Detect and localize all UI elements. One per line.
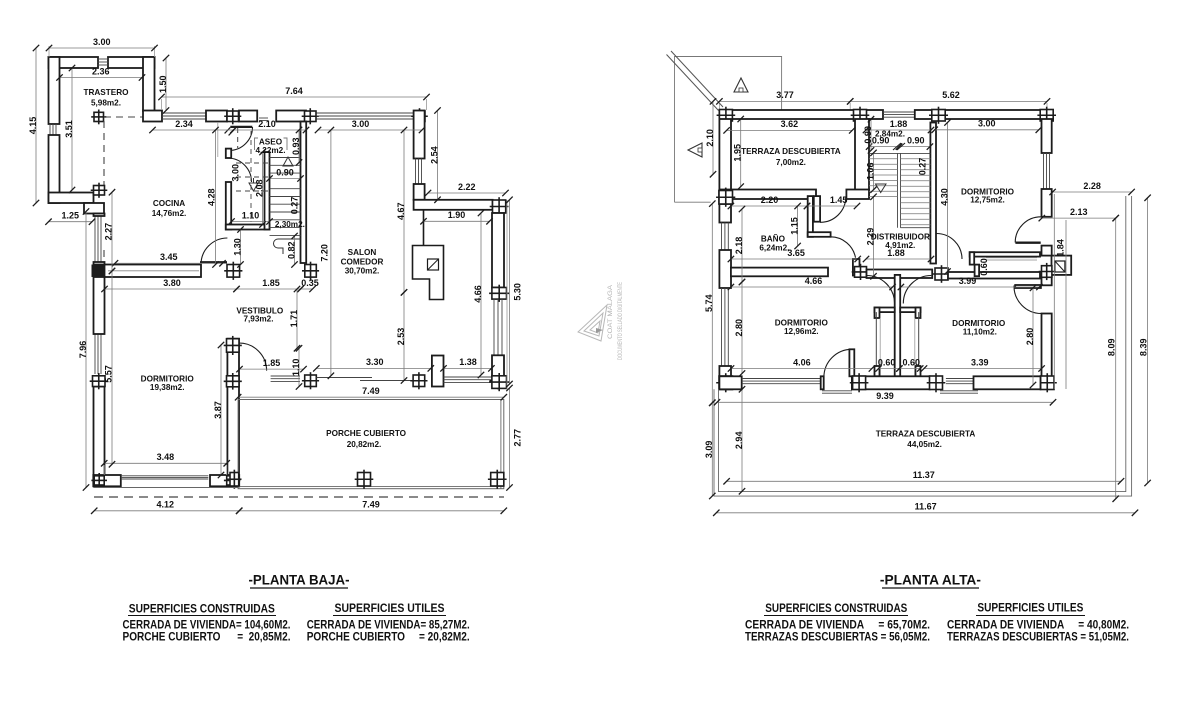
svg-text:3.48: 3.48 <box>157 452 175 462</box>
svg-text:TERRAZA DESCUBIERTA: TERRAZA DESCUBIERTA <box>876 429 976 438</box>
svg-text:1.10: 1.10 <box>242 210 260 220</box>
svg-text:-PLANTA BAJA-: -PLANTA BAJA- <box>249 572 350 588</box>
svg-text:4,91m2.: 4,91m2. <box>885 241 915 250</box>
svg-text:3.62: 3.62 <box>781 119 799 129</box>
svg-text:CERRADA DE VIVIENDA = 40,8: CERRADA DE VIVIENDA = 40,80M2. <box>947 620 1129 632</box>
svg-text:3.00: 3.00 <box>978 119 996 129</box>
svg-text:2.80: 2.80 <box>1025 328 1035 346</box>
svg-text:2.28: 2.28 <box>1083 181 1101 191</box>
svg-text:4.28: 4.28 <box>207 188 217 206</box>
svg-text:0.60: 0.60 <box>979 258 989 276</box>
svg-text:DORMITORIO: DORMITORIO <box>775 318 829 327</box>
svg-text:-PLANTA ALTA-: -PLANTA ALTA- <box>880 572 981 588</box>
svg-text:2.53: 2.53 <box>396 328 406 346</box>
svg-text:3.51: 3.51 <box>64 120 74 138</box>
svg-text:2.27: 2.27 <box>104 223 114 241</box>
svg-text:COMEDOR: COMEDOR <box>341 257 384 266</box>
svg-text:PORCHE CUBIERTO: PORCHE CUBIERTO <box>326 429 407 438</box>
svg-text:2.54: 2.54 <box>429 146 439 164</box>
svg-text:2.18: 2.18 <box>734 237 744 255</box>
svg-text:0.82: 0.82 <box>286 241 296 259</box>
svg-text:3.39: 3.39 <box>971 357 989 367</box>
svg-text:0.60: 0.60 <box>878 357 896 367</box>
svg-text:SUPERFICIES CONSTRUIDAS: SUPERFICIES CONSTRUIDAS <box>765 603 907 615</box>
svg-text:TERRAZAS DESCUBIERTAS = 51,05M: TERRAZAS DESCUBIERTAS = 51,05M2. <box>947 632 1129 644</box>
svg-text:3.00: 3.00 <box>93 37 111 47</box>
svg-text:7,00m2.: 7,00m2. <box>776 158 806 167</box>
svg-text:12,96m2.: 12,96m2. <box>784 327 819 336</box>
svg-text:8.39: 8.39 <box>1139 339 1149 357</box>
svg-text:PORCHE CUBIERTO = 20,82M2.: PORCHE CUBIERTO = 20,82M2. <box>307 632 470 644</box>
svg-text:3.00: 3.00 <box>352 119 370 129</box>
svg-text:4.30: 4.30 <box>939 188 949 206</box>
svg-text:7.64: 7.64 <box>285 86 303 96</box>
svg-text:2.08: 2.08 <box>254 179 264 197</box>
svg-text:2.36: 2.36 <box>92 66 110 76</box>
svg-text:1.38: 1.38 <box>459 357 477 367</box>
svg-text:1.45: 1.45 <box>830 195 848 205</box>
svg-text:1.25: 1.25 <box>61 211 79 221</box>
svg-text:19,38m2.: 19,38m2. <box>150 383 185 392</box>
svg-text:11.37: 11.37 <box>913 470 935 480</box>
svg-text:4,22m2.: 4,22m2. <box>255 146 285 155</box>
svg-text:TRASTERO: TRASTERO <box>83 88 129 97</box>
svg-text:0.60: 0.60 <box>903 357 921 367</box>
svg-text:TERRAZAS DESCUBIERTAS = 56,05M: TERRAZAS DESCUBIERTAS = 56,05M2. <box>745 632 930 644</box>
svg-text:44,05m2.: 44,05m2. <box>907 440 942 449</box>
svg-text:5.74: 5.74 <box>704 294 714 312</box>
svg-text:4.66: 4.66 <box>805 276 823 286</box>
svg-text:2.77: 2.77 <box>513 429 523 447</box>
svg-text:2.34: 2.34 <box>175 119 193 129</box>
svg-text:12,75m2.: 12,75m2. <box>970 196 1005 205</box>
svg-text:2.10: 2.10 <box>258 119 276 129</box>
svg-text:7.49: 7.49 <box>362 500 380 510</box>
svg-text:11.67: 11.67 <box>915 502 937 512</box>
svg-text:7.49: 7.49 <box>362 386 380 396</box>
svg-text:2.20: 2.20 <box>761 195 779 205</box>
svg-text:20,82m2.: 20,82m2. <box>347 440 382 449</box>
svg-text:3.45: 3.45 <box>160 252 178 262</box>
svg-text:7.20: 7.20 <box>320 244 330 262</box>
svg-text:1.88: 1.88 <box>890 119 908 129</box>
svg-text:3.09: 3.09 <box>704 441 714 459</box>
svg-text:1.85: 1.85 <box>262 278 280 288</box>
svg-text:BAÑO: BAÑO <box>761 234 786 244</box>
svg-text:0.27: 0.27 <box>290 197 300 215</box>
svg-text:8.09: 8.09 <box>1107 339 1117 357</box>
svg-text:14,76m2.: 14,76m2. <box>152 209 187 218</box>
svg-text:1.90: 1.90 <box>448 210 466 220</box>
svg-text:3.77: 3.77 <box>776 90 794 100</box>
svg-text:1.06: 1.06 <box>865 163 875 181</box>
svg-text:3.99: 3.99 <box>959 276 977 286</box>
svg-text:11,10m2.: 11,10m2. <box>963 328 997 337</box>
svg-text:6,24m2.: 6,24m2. <box>759 243 789 252</box>
svg-text:1.10: 1.10 <box>291 359 301 377</box>
svg-text:1.85: 1.85 <box>263 358 281 368</box>
svg-text:2.80: 2.80 <box>734 319 744 337</box>
svg-text:DISTRIBUIDOR: DISTRIBUIDOR <box>871 232 930 241</box>
svg-text:2.94: 2.94 <box>734 432 744 450</box>
svg-text:3.80: 3.80 <box>163 278 181 288</box>
svg-text:1.71: 1.71 <box>289 310 299 328</box>
svg-text:5.57: 5.57 <box>104 365 114 383</box>
svg-text:5.62: 5.62 <box>942 90 960 100</box>
svg-text:4.12: 4.12 <box>157 500 175 510</box>
svg-text:7.96: 7.96 <box>78 341 88 359</box>
svg-text:0.90: 0.90 <box>276 167 294 177</box>
svg-text:SUPERFICIES UTILES: SUPERFICIES UTILES <box>977 603 1083 615</box>
svg-text:5.30: 5.30 <box>513 283 523 301</box>
svg-text:3.30: 3.30 <box>366 357 384 367</box>
svg-text:9.39: 9.39 <box>876 391 894 401</box>
svg-text:4.66: 4.66 <box>473 285 483 303</box>
svg-text:CERRADA DE VIVIENDA= 104,60M2.: CERRADA DE VIVIENDA= 104,60M2. <box>123 620 291 632</box>
svg-text:COAT MALAGA: COAT MALAGA <box>607 284 614 339</box>
svg-text:0.90: 0.90 <box>907 135 925 145</box>
svg-text:SUPERFICIES UTILES: SUPERFICIES UTILES <box>335 603 445 615</box>
svg-text:COCINA: COCINA <box>153 199 185 208</box>
svg-text:0.93: 0.93 <box>291 137 301 155</box>
svg-text:0.90: 0.90 <box>872 135 890 145</box>
svg-text:CERRADA DE VIVIENDA= 85,27M2.: CERRADA DE VIVIENDA= 85,27M2. <box>307 620 470 632</box>
svg-text:DORMITORIO: DORMITORIO <box>952 319 1006 328</box>
svg-text:2.10: 2.10 <box>705 129 715 147</box>
svg-text:2.13: 2.13 <box>1070 207 1088 217</box>
svg-text:0.90: 0.90 <box>863 126 873 144</box>
svg-text:CERRADA DE VIVIENDA = 65,7: CERRADA DE VIVIENDA = 65,70M2. <box>745 620 930 632</box>
svg-text:PORCHE CUBIERTO = 20,85M: PORCHE CUBIERTO = 20,85M2. <box>123 632 291 644</box>
svg-text:2.22: 2.22 <box>458 182 476 192</box>
svg-text:7,93m2.: 7,93m2. <box>243 314 273 323</box>
svg-text:4.15: 4.15 <box>28 117 38 135</box>
svg-text:1.84: 1.84 <box>1056 239 1066 257</box>
svg-text:3.00: 3.00 <box>231 164 241 182</box>
svg-text:DOCUMENTO SELLADO DIGITALMENTE: DOCUMENTO SELLADO DIGITALMENTE <box>617 282 624 360</box>
svg-text:1.15: 1.15 <box>789 217 799 235</box>
svg-text:5,98m2.: 5,98m2. <box>91 99 121 108</box>
svg-text:0.27: 0.27 <box>918 158 928 176</box>
svg-text:4.06: 4.06 <box>793 357 811 367</box>
svg-text:1.30: 1.30 <box>232 238 242 256</box>
svg-text:30,70m2.: 30,70m2. <box>345 267 380 276</box>
svg-text:3.87: 3.87 <box>213 401 223 419</box>
svg-text:3.65: 3.65 <box>787 248 805 258</box>
svg-text:TERRAZA DESCUBIERTA: TERRAZA DESCUBIERTA <box>741 147 841 156</box>
svg-text:4.67: 4.67 <box>396 202 406 220</box>
svg-text:SALON: SALON <box>348 248 377 257</box>
svg-text:2,30m2.: 2,30m2. <box>275 220 305 229</box>
svg-text:0.35: 0.35 <box>301 278 319 288</box>
svg-text:SUPERFICIES CONSTRUIDAS: SUPERFICIES CONSTRUIDAS <box>129 604 275 616</box>
svg-text:1.50: 1.50 <box>158 75 168 93</box>
